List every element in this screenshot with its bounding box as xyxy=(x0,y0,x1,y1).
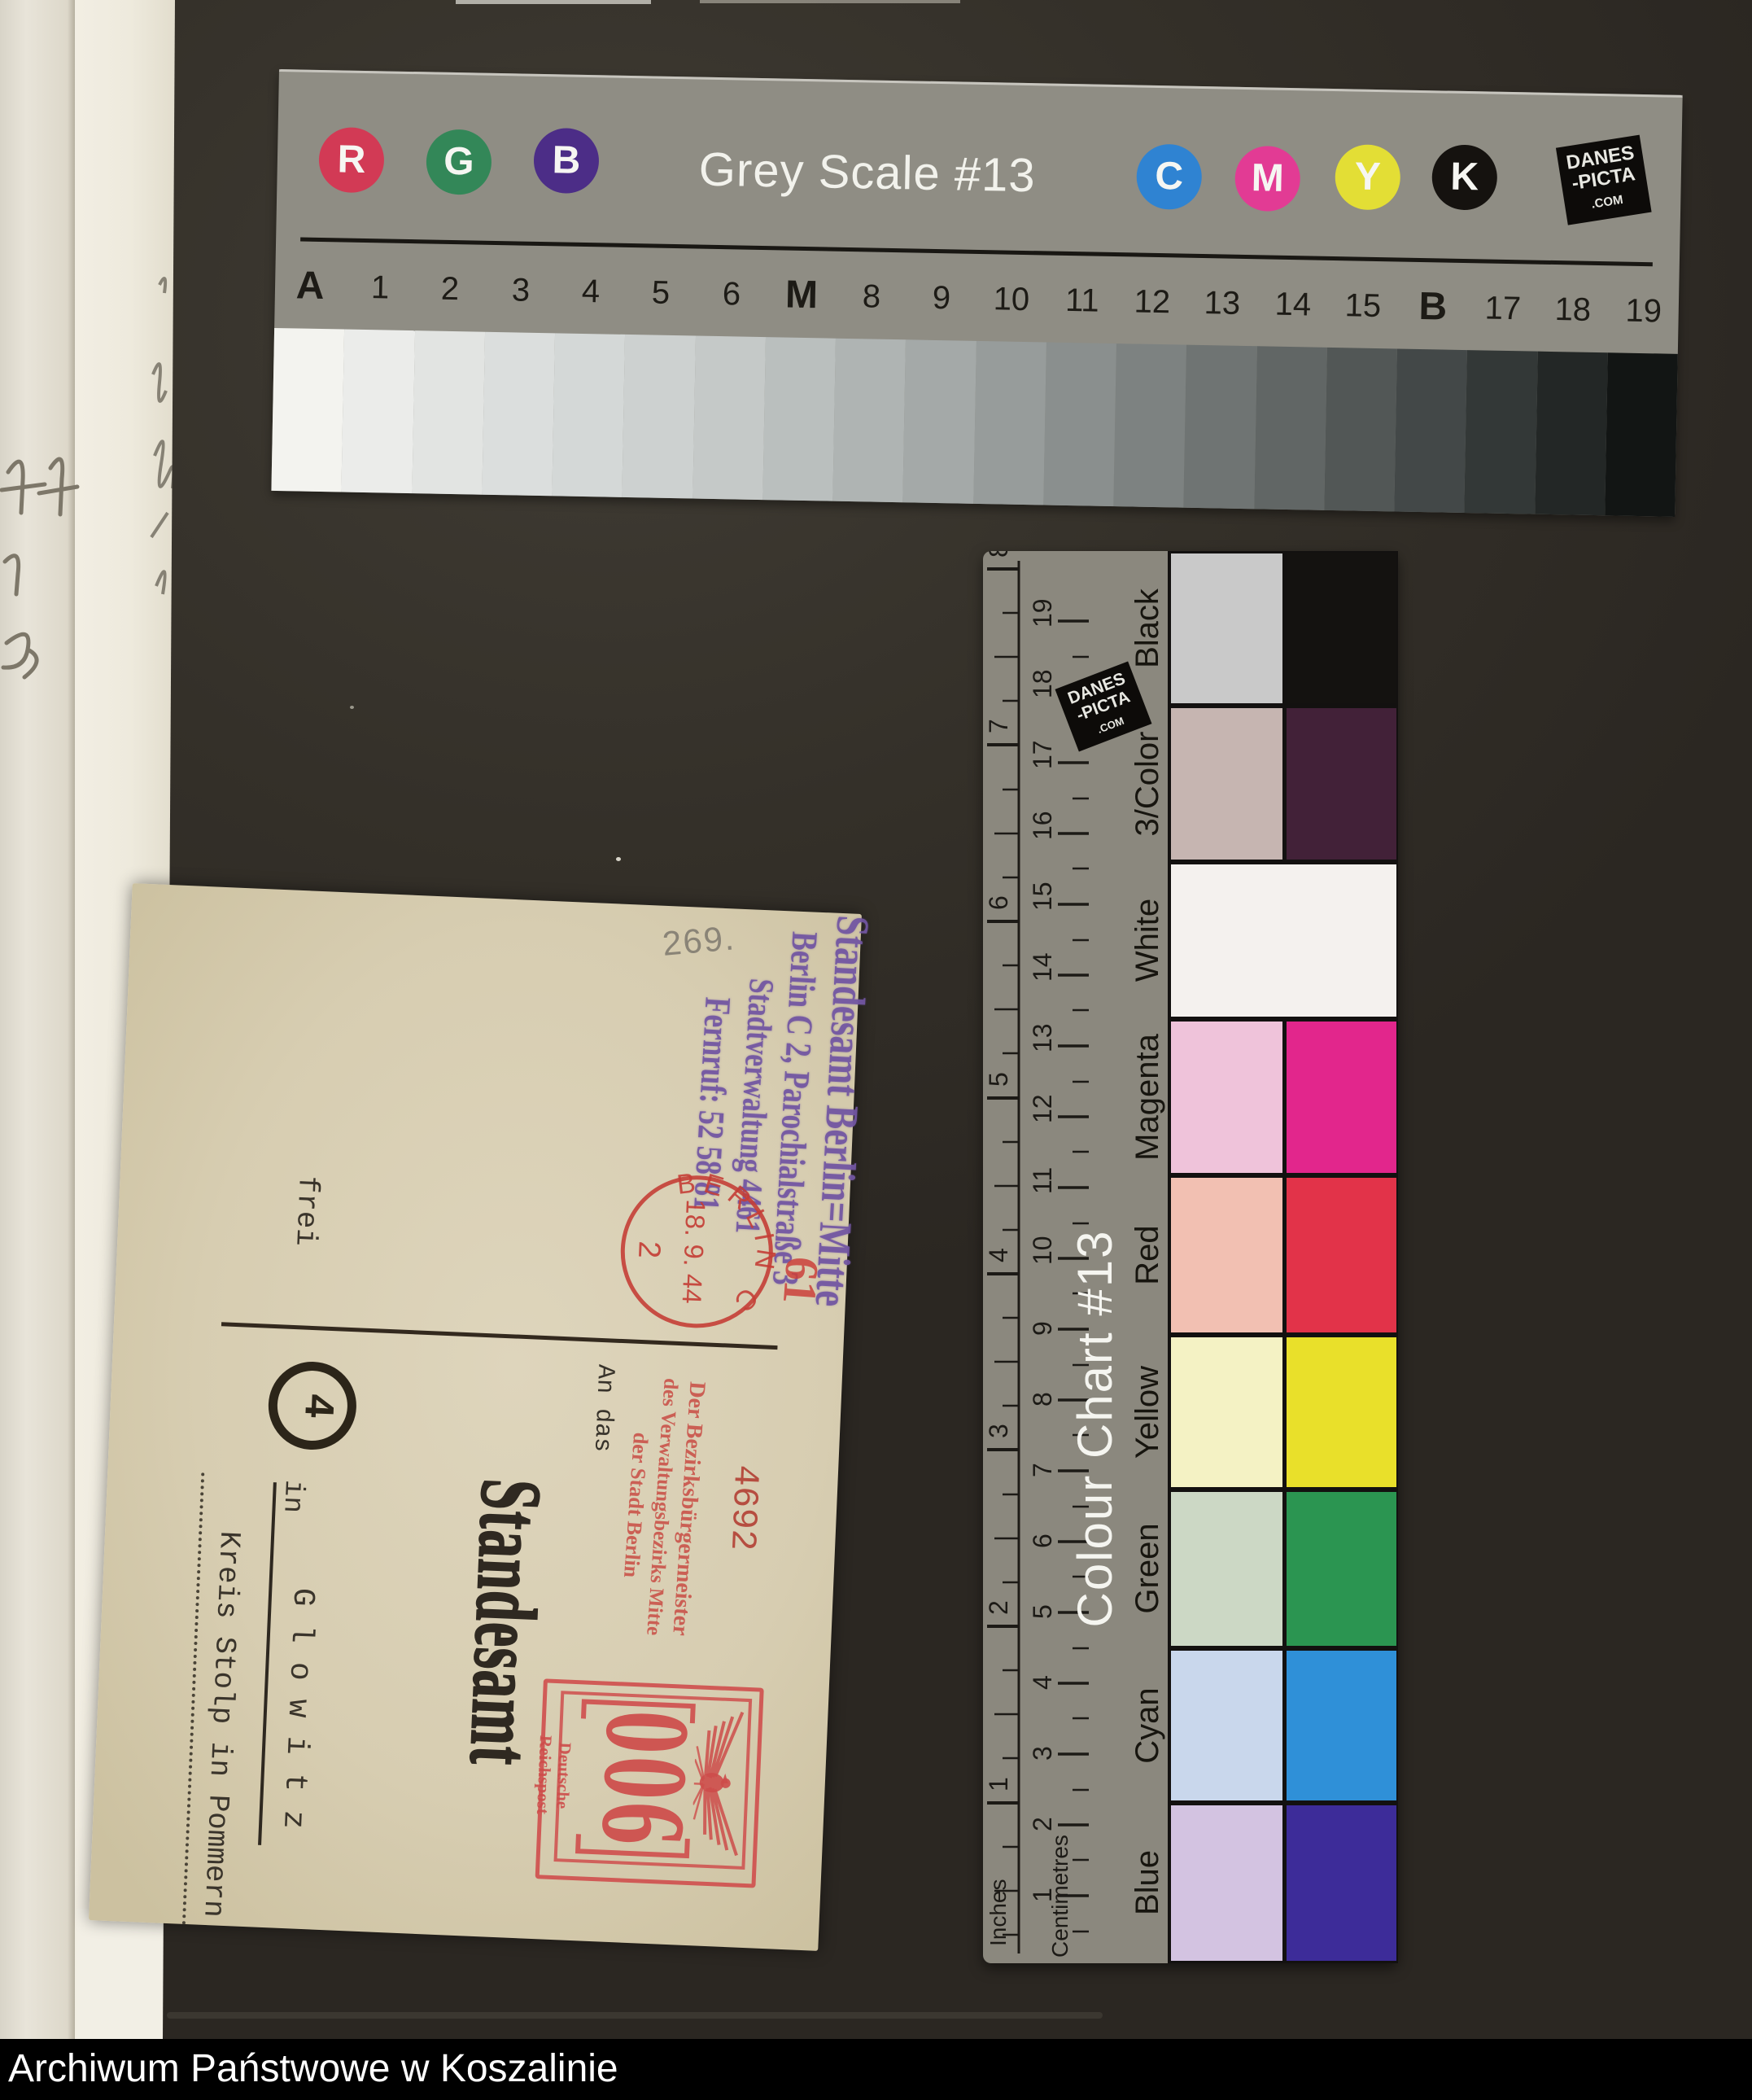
svg-text:3: 3 xyxy=(984,1424,1013,1438)
svg-text:11: 11 xyxy=(1028,1167,1057,1194)
svg-text:15: 15 xyxy=(1028,882,1057,911)
svg-text:1: 1 xyxy=(984,1777,1013,1792)
svg-text:8: 8 xyxy=(984,551,1013,558)
svg-text:Centimetres: Centimetres xyxy=(1047,1835,1073,1958)
svg-text:7: 7 xyxy=(984,719,1013,733)
svg-text:3: 3 xyxy=(1028,1746,1057,1761)
svg-text:14: 14 xyxy=(1028,952,1057,982)
svg-text:19: 19 xyxy=(1028,598,1057,628)
svg-text:18. 9. 44: 18. 9. 44 xyxy=(677,1199,711,1305)
svg-text:13: 13 xyxy=(1028,1023,1057,1052)
svg-text:6: 6 xyxy=(1028,1533,1057,1548)
svg-text:17: 17 xyxy=(1028,740,1057,769)
svg-text:2: 2 xyxy=(984,1600,1013,1615)
svg-text:4: 4 xyxy=(1028,1675,1057,1690)
svg-text:12: 12 xyxy=(1028,1094,1057,1123)
svg-text:5: 5 xyxy=(984,1072,1013,1087)
svg-text:2: 2 xyxy=(1028,1817,1057,1831)
svg-text:5: 5 xyxy=(1028,1604,1057,1619)
svg-text:6: 6 xyxy=(984,895,1013,910)
svg-text:Inches: Inches xyxy=(985,1879,1011,1947)
svg-text:2: 2 xyxy=(631,1240,666,1259)
svg-text:9: 9 xyxy=(1028,1321,1057,1336)
svg-text:16: 16 xyxy=(1028,811,1057,840)
svg-text:4: 4 xyxy=(984,1248,1013,1262)
svg-text:18: 18 xyxy=(1028,669,1057,698)
svg-text:10: 10 xyxy=(1028,1236,1057,1265)
svg-text:8: 8 xyxy=(1028,1392,1057,1407)
svg-text:7: 7 xyxy=(1028,1463,1057,1477)
